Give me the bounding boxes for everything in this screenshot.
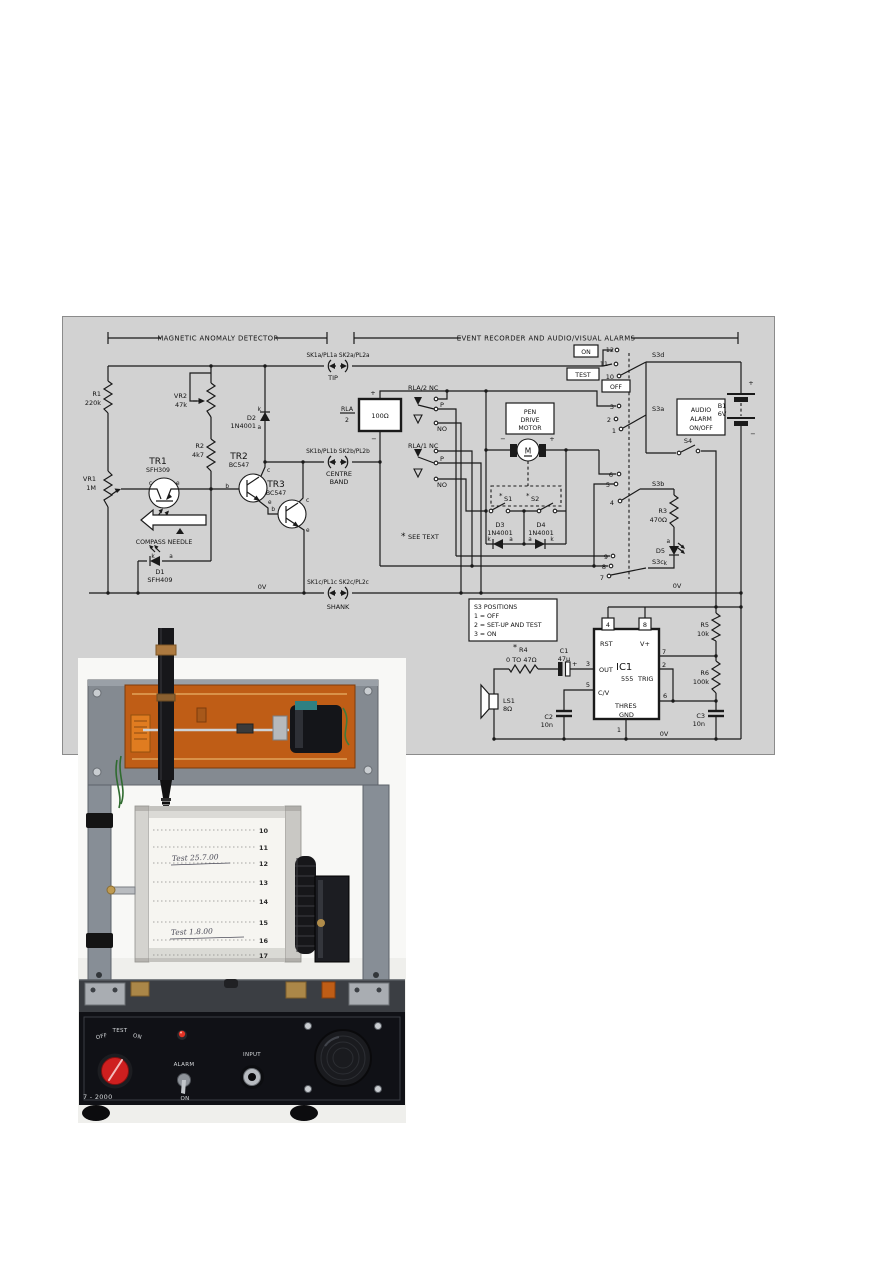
svg-text:P: P <box>440 401 444 409</box>
d3-val: 1N4001 <box>487 529 513 537</box>
svg-text:NC: NC <box>429 384 439 392</box>
photo-svg: 10 11 12 13 14 15 16 17 Test 25.7.00 Tes… <box>77 628 407 1124</box>
tr3-ref: TR3 <box>266 480 284 490</box>
svg-text:b: b <box>225 484 229 490</box>
r3-val: 470Ω <box>650 516 667 524</box>
cb-refs: SK1b/PL1b SK2b/PL2b <box>306 449 370 455</box>
ls1-ref: LS1 <box>503 697 515 705</box>
d4-val: 1N4001 <box>528 529 554 537</box>
shank-connector <box>328 587 347 599</box>
alarm-label: ALARM <box>174 1062 195 1068</box>
resistor-r2 <box>207 439 215 471</box>
transistor-tr2 <box>239 474 267 502</box>
capacitor-c2 <box>556 711 572 716</box>
cb-name1: CENTRE <box>326 470 352 478</box>
screw <box>305 1086 312 1093</box>
strap-upper <box>86 813 113 828</box>
pin3: 3 <box>586 660 590 668</box>
s1-label: S1 <box>504 495 512 503</box>
d5-ref: D5 <box>656 547 665 555</box>
tip-refs: SK1a/PL1a SK2a/PL2a <box>306 353 370 359</box>
svg-text:P: P <box>440 455 444 463</box>
drum-gear <box>295 856 316 954</box>
b1-val: 6V <box>718 410 727 418</box>
svg-text:14: 14 <box>259 898 269 906</box>
battery-plus: + <box>748 379 753 387</box>
svg-text:−: − <box>500 435 505 443</box>
vr2-ref: VR2 <box>174 392 187 400</box>
pin-vplus: V+ <box>640 640 650 648</box>
r4-star: * <box>513 643 517 652</box>
svg-text:7: 7 <box>600 574 604 582</box>
b1-ref: B1 <box>718 402 727 410</box>
pin-rst: RST <box>600 640 613 648</box>
pin-cv: C/V <box>598 689 610 697</box>
orange-tab <box>322 982 335 998</box>
strap-lower <box>86 933 113 948</box>
svg-text:DRIVE: DRIVE <box>520 417 539 424</box>
header-event-recorder: EVENT RECORDER AND AUDIO/VISUAL ALARMS <box>457 335 636 343</box>
s3d-label: S3d <box>652 351 664 359</box>
tr3-val: BC547 <box>266 490 286 497</box>
svg-text:a: a <box>509 537 513 543</box>
d3-ref: D3 <box>495 521 504 529</box>
svg-text:0V: 0V <box>660 730 669 738</box>
r1-val: 220k <box>85 399 101 407</box>
diode-d2 <box>260 412 270 421</box>
r1-ref: R1 <box>92 390 101 398</box>
pin1: 1 <box>617 726 621 734</box>
tr1-val: SFH309 <box>146 467 170 474</box>
svg-text:2: 2 <box>607 416 611 424</box>
screw <box>305 1023 312 1030</box>
center-cap <box>224 979 238 988</box>
transistor-tr3 <box>278 500 306 528</box>
gear-motor-block <box>315 876 349 962</box>
bracket-left <box>85 983 125 1005</box>
svg-text:PEN: PEN <box>524 409 537 416</box>
svg-text:k: k <box>550 537 554 543</box>
svg-text:ON/OFF: ON/OFF <box>689 425 713 432</box>
svg-text:13: 13 <box>259 879 268 887</box>
label-boxes: ON TEST OFF PEN DRIVE MOTOR AUDIO ALARM … <box>469 345 725 641</box>
label-off: OFF <box>610 384 622 391</box>
tip-connector <box>328 360 347 372</box>
svg-text:5: 5 <box>606 481 610 489</box>
bracket-right <box>349 983 389 1005</box>
svg-text:1 = OFF: 1 = OFF <box>474 613 499 620</box>
device-photograph: 10 11 12 13 14 15 16 17 Test 25.7.00 Tes… <box>77 628 407 1124</box>
d2-ref: D2 <box>247 414 256 422</box>
relay-contacts <box>414 397 438 481</box>
svg-text:2 = SET-UP AND TEST: 2 = SET-UP AND TEST <box>474 622 542 629</box>
pin-gnd: GND <box>619 711 634 719</box>
svg-text:e: e <box>306 528 310 534</box>
svg-text:c: c <box>306 498 309 504</box>
svg-text:12: 12 <box>259 860 268 868</box>
foot-right <box>290 1105 318 1121</box>
coil-plus: + <box>370 389 375 397</box>
r6-val: 100k <box>693 678 709 686</box>
relay-den: 2 <box>345 417 349 424</box>
r4-ref: R4 <box>519 646 528 654</box>
note-test-25-7-00: Test 25.7.00 <box>172 852 219 863</box>
alarm-on-label: ON <box>180 1096 189 1102</box>
input-label: INPUT <box>243 1052 261 1058</box>
see-text-note: SEE TEXT <box>408 533 439 541</box>
shank-name: SHANK <box>327 603 350 611</box>
s4-label: S4 <box>684 437 692 445</box>
svg-text:0V: 0V <box>258 583 267 591</box>
diode-component <box>237 724 253 733</box>
hinge-right <box>286 982 306 998</box>
rla2-label: RLA/2 <box>408 384 427 392</box>
svg-text:AUDIO: AUDIO <box>691 407 711 414</box>
input-jack[interactable]: INPUT <box>240 1052 264 1089</box>
model-number: 7 - 2000 <box>83 1093 113 1101</box>
pin4: 4 <box>606 621 610 629</box>
magazine-page: MAGNETIC ANOMALY DETECTOR EVENT RECORDER… <box>0 0 893 1263</box>
pin6: 6 <box>663 692 667 700</box>
compass-needle <box>141 510 206 534</box>
knob-test-label: TEST <box>112 1028 128 1034</box>
d1-val: SFH409 <box>147 576 172 584</box>
screw <box>375 1023 382 1030</box>
r5-ref: R5 <box>700 621 709 629</box>
motor-sticker <box>295 701 317 710</box>
svg-text:0V: 0V <box>673 582 682 590</box>
svg-text:11: 11 <box>259 844 269 852</box>
led-d5 <box>669 543 685 555</box>
rla2-contacts <box>414 397 438 425</box>
s2-label: S2 <box>531 495 539 503</box>
label-test: TEST <box>574 372 591 379</box>
label-on: ON <box>581 349 591 356</box>
c2-ref: C2 <box>544 713 553 721</box>
vr1-ref: VR1 <box>83 475 96 483</box>
svg-text:*: * <box>401 532 406 542</box>
svg-text:c: c <box>267 468 270 474</box>
svg-text:a: a <box>257 425 261 431</box>
s3-positions-box: S3 POSITIONS 1 = OFF 2 = SET-UP AND TEST… <box>469 599 557 641</box>
c3-val: 10n <box>693 720 705 728</box>
svg-text:10: 10 <box>259 827 269 835</box>
relay-coil: 100Ω RLA 2 + − <box>340 389 401 443</box>
d1-ref: D1 <box>155 568 164 576</box>
svg-text:*: * <box>526 492 530 500</box>
resistor-r5 <box>712 613 720 641</box>
diode-d4 <box>535 539 545 549</box>
svg-text:a: a <box>528 537 532 543</box>
pin5: 5 <box>586 681 590 689</box>
screw <box>375 1086 382 1093</box>
svg-text:c: c <box>149 481 152 487</box>
rla1-contacts <box>414 449 438 481</box>
pin8: 8 <box>643 621 647 629</box>
relay-coil-value: 100Ω <box>371 412 388 420</box>
r5-val: 10k <box>697 630 709 638</box>
svg-text:1: 1 <box>612 427 616 435</box>
svg-text:15: 15 <box>259 919 269 927</box>
pin-thres: THRES <box>614 702 637 710</box>
svg-text:17: 17 <box>259 952 268 960</box>
vr2-val: 47k <box>175 401 187 409</box>
battery-minus: − <box>750 430 755 438</box>
svg-text:b: b <box>271 507 275 513</box>
svg-text:S3 POSITIONS: S3 POSITIONS <box>474 604 517 611</box>
ls1-val: 8Ω <box>503 705 512 713</box>
pin7: 7 <box>662 648 666 656</box>
s3c-label: S3c <box>652 558 664 566</box>
tr2-val: BC547 <box>229 462 249 469</box>
coil-minus: − <box>371 435 376 443</box>
preset-vr1 <box>104 471 112 507</box>
diode-d3 <box>493 539 503 549</box>
svg-text:3: 3 <box>610 403 614 411</box>
svg-text:16: 16 <box>259 937 269 945</box>
cb-name2: BAND <box>330 478 349 486</box>
svg-text:MOTOR: MOTOR <box>518 425 542 432</box>
note-test-1-8-00: Test 1.8.00 <box>171 927 213 937</box>
svg-text:NC: NC <box>429 442 439 450</box>
svg-text:NO: NO <box>437 481 447 489</box>
s3b-label: S3b <box>652 480 664 488</box>
vr1-val: 1M <box>86 484 96 492</box>
resistor-r6 <box>712 661 720 693</box>
foot-left <box>82 1105 110 1121</box>
d4-ref: D4 <box>536 521 545 529</box>
svg-text:*: * <box>499 492 503 500</box>
alarm-led <box>179 1031 185 1037</box>
r4-val: 0 TO 47Ω <box>506 656 537 664</box>
relay-ref: RLA <box>341 406 354 413</box>
svg-text:e: e <box>176 481 180 487</box>
ic1-555: 555 <box>621 675 633 683</box>
centre-band-connector <box>328 456 347 468</box>
ic1-555: 4 8 RST V+ OUT IC1 555 TRIG C/V THRES GN… <box>586 618 667 734</box>
pin-trig: TRIG <box>637 675 653 683</box>
svg-text:NO: NO <box>437 425 447 433</box>
preset-vr2 <box>207 383 215 417</box>
r2-val: 4k7 <box>192 451 204 459</box>
svg-text:a: a <box>666 539 670 545</box>
tr2-ref: TR2 <box>229 452 247 462</box>
shank-refs: SK1c/PL1c SK2c/PL2c <box>307 580 369 586</box>
c1-val: 47µ <box>558 655 570 663</box>
svg-text:+: + <box>549 435 554 443</box>
svg-text:ALARM: ALARM <box>690 416 712 423</box>
svg-text:k: k <box>664 561 668 567</box>
resistor-r1 <box>104 381 112 413</box>
rla1-label: RLA/1 <box>408 442 427 450</box>
d2-val: 1N4001 <box>230 422 256 430</box>
pin2: 2 <box>662 661 666 669</box>
c1-ref: C1 <box>560 647 569 655</box>
capacitor-c3 <box>708 711 724 716</box>
svg-text:12: 12 <box>606 346 614 354</box>
c3-ref: C3 <box>696 712 705 720</box>
section-headers: MAGNETIC ANOMALY DETECTOR EVENT RECORDER… <box>108 332 738 344</box>
svg-text:e: e <box>268 500 272 506</box>
svg-text:8: 8 <box>602 563 606 571</box>
ic1-ref: IC1 <box>616 662 632 673</box>
header-magnetic-anomaly: MAGNETIC ANOMALY DETECTOR <box>157 335 278 343</box>
motor-bracket <box>273 716 287 740</box>
compass-needle-label: COMPASS NEEDLE <box>136 539 193 546</box>
base-unit: OFF TEST ON 7 - 2000 ALARM ON <box>79 979 405 1121</box>
hinge-left <box>131 982 149 996</box>
svg-text:11: 11 <box>600 360 608 368</box>
resistor-r4 <box>509 665 538 673</box>
svg-text:10: 10 <box>606 373 614 381</box>
c2-val: 10n <box>541 721 553 729</box>
svg-text:9: 9 <box>604 553 608 561</box>
tip-name: TIP <box>327 374 338 382</box>
loudspeaker-ls1 <box>481 685 498 718</box>
c1-plus: + <box>572 660 577 668</box>
svg-text:3 = ON: 3 = ON <box>474 631 497 638</box>
r3-ref: R3 <box>658 507 667 515</box>
r6-ref: R6 <box>700 669 709 677</box>
pin-out: OUT <box>599 666 613 674</box>
motor-m: M <box>525 447 531 456</box>
svg-text:6: 6 <box>609 471 613 479</box>
r2-ref: R2 <box>195 442 204 450</box>
svg-text:a: a <box>169 554 173 560</box>
s3a-label: S3a <box>652 405 664 413</box>
resistor-r3 <box>670 495 678 527</box>
svg-text:k: k <box>487 537 491 543</box>
tr1-ref: TR1 <box>148 457 166 467</box>
svg-text:4: 4 <box>610 499 614 507</box>
